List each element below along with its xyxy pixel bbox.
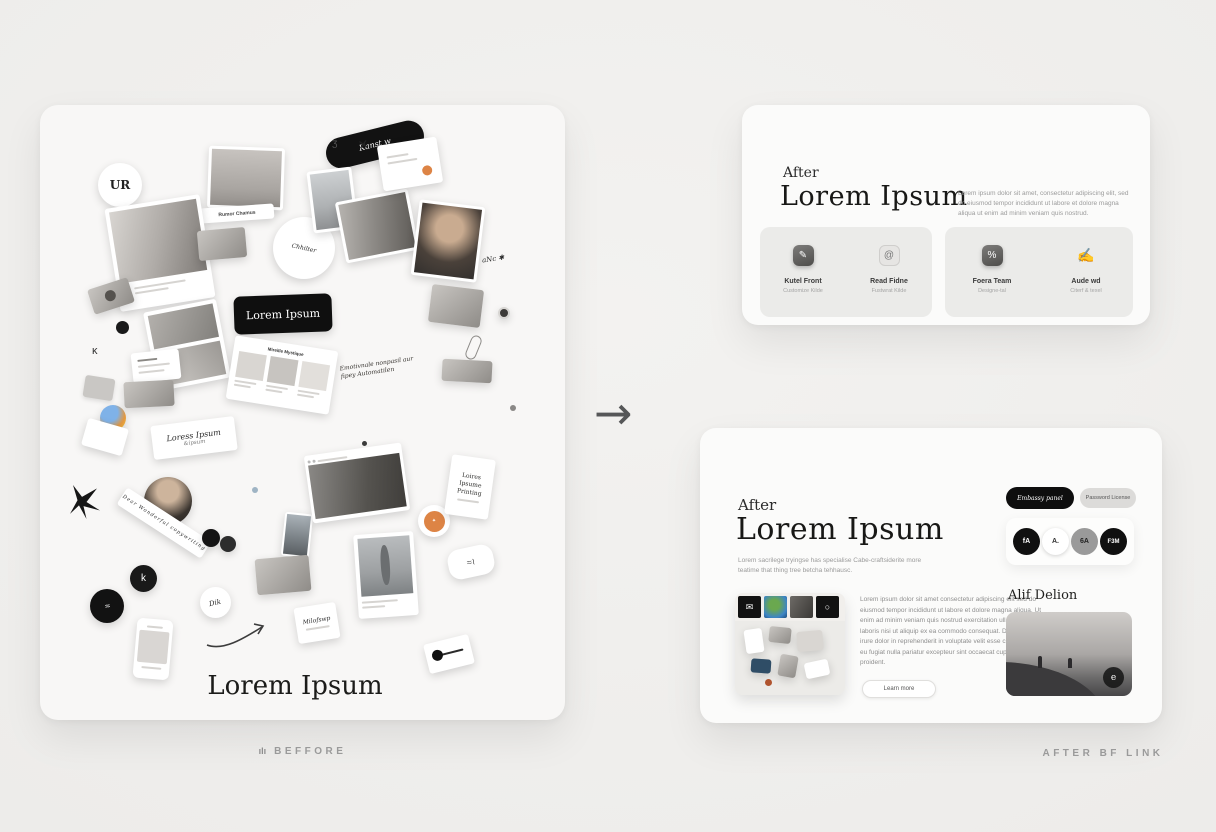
dik-badge: Dik [200,587,231,618]
signature-icon: ✍ [1076,245,1097,266]
feature-3: % Foera Team Designe-tal [945,227,1039,317]
sketch-pebble-glyph: ≈≀ [466,556,476,568]
black-badge-b [220,536,236,552]
before-caption: ılıBEFFORE [40,746,565,757]
browser-card-suit-man [304,443,411,524]
note-line2: &ipsum [183,438,205,447]
tag-sticker-label: Rumor Chamus [218,209,256,218]
mood-icon-photo [790,596,813,618]
paperclip [464,334,484,361]
phone-mockup [132,618,173,681]
k-badge: k [130,565,157,592]
dik-badge-label: Dik [209,597,222,607]
after-top-paragraph: Lorem ipsum dolor sit amet, consectetur … [958,189,1130,219]
after-top-card: After Lorem Ipsum Lorem ipsum dolor sit … [742,105,1150,325]
feature-2-subtitle: Fustwrat Kilde [846,288,932,294]
gallery-photo: e [1006,612,1132,696]
photo-strip [441,359,492,384]
feature-3-title: Foera Team [945,278,1039,285]
feature-panel-left: ✎ Kutel Front Customize Kilde @ Read Fid… [760,227,932,317]
text-note-card [131,349,182,384]
photo-group [255,555,312,596]
pen-icon: ✎ [793,245,814,266]
three-scribble: ʒ [332,138,337,149]
after-bottom-card: After Lorem Ipsum Lorem sacrilege trying… [700,428,1162,723]
after-bottom-subtitle: Lorem sacrilege tryingse has specialise … [738,556,933,576]
moodboard-thumbnail: ✉ ○ [735,593,845,695]
gray-swatch [82,375,115,401]
photo-meditating-man [207,146,285,211]
slider-card [423,634,475,674]
mood-icon-circle: ○ [816,596,839,618]
social-icon-2[interactable]: A. [1042,528,1069,555]
mood-icon-earth [764,596,787,618]
light-pill-label: Password License [1086,495,1131,501]
after-top-kicker: After [783,165,819,181]
road-shape [1006,662,1106,696]
after-bottom-title: Lorem Ipsum [736,512,944,547]
mood-icon-mail: ✉ [738,596,761,618]
scribble-badge: ≈ [90,589,124,623]
speck-b [362,441,367,446]
percent-icon: % [982,245,1003,266]
polaroid-beach [281,512,313,559]
handwritten-note-card: Loress Ipsum &ipsum [150,416,238,460]
before-caption-icon: ılı [259,746,267,756]
k-badge-label: k [141,573,146,584]
business-card: Milofswp [293,602,340,644]
k-scribble: κ [92,345,98,357]
printing-card: Loires Ipsume Printing [444,454,496,520]
script-circle-label: Chhilter [291,242,317,254]
after-caption: AFTER BF LINK [1003,748,1203,759]
ur-badge: UR [98,163,142,207]
feature-3-subtitle: Designe-tal [945,288,1039,294]
ur-badge-label: UR [110,178,130,192]
feature-4-title: Aude wd [1039,278,1133,285]
person-silhouette-2 [1068,658,1072,668]
photo-group-right [428,284,484,328]
person-silhouette-1 [1038,656,1042,668]
feature-1-subtitle: Customize Kilde [760,288,846,294]
anc-sticker: aNc ✱ [482,253,505,264]
feature-panel-right: % Foera Team Designe-tal ✍ Aude wd Citer… [945,227,1133,317]
at-icon: @ [879,245,900,266]
photo-woman-portrait [411,199,486,282]
ink-bow-shape [70,485,100,519]
photo-city-scene [335,189,419,264]
feature-1-title: Kutel Front [760,278,846,285]
social-icons-bar: fA A. 6A F3M [1006,518,1134,565]
gallery-title: Alif Delion [1008,588,1077,603]
feature-4: ✍ Aude wd Citerf & texel [1039,227,1133,317]
black-badge-a [202,529,220,547]
learn-more-button[interactable]: Learn more [862,680,936,698]
web-mockup-card: Mireille Mystique [226,335,339,414]
photo-two-women [197,227,247,261]
feature-4-subtitle: Citerf & texel [1039,288,1133,294]
feature-2-title: Read Fidne [846,278,932,285]
social-icon-3[interactable]: 6A [1071,528,1098,555]
dark-pill-button[interactable]: Embassy panel [1006,487,1074,509]
after-top-title: Lorem Ipsum [780,181,968,212]
speck-c [252,487,258,493]
social-icon-1[interactable]: fA [1013,528,1040,555]
sketch-pebble-card: ≈≀ [445,543,496,582]
social-icon-4[interactable]: F3M [1100,528,1127,555]
printing-card-label: Loires Ipsume Printing [456,471,484,498]
lorem-black-pill-label: Lorem Ipsum [246,306,321,322]
curved-arrow-sketch [205,620,271,655]
photo-badge[interactable]: e [1103,667,1124,688]
dark-pill-label: Embassy panel [1017,495,1063,502]
scribble-badge-label: ≈ [103,601,110,612]
transform-arrow-icon: → [594,386,633,440]
speck-a [510,405,516,411]
card-orange-dot [377,137,443,192]
before-caption-label: BEFFORE [274,746,346,757]
light-pill-button[interactable]: Password License [1080,488,1136,508]
board-title: Lorem Ipsum [180,671,410,701]
before-board: Kanst w UR Rumor Chamus Chhilter ✕ ʒ [40,105,565,720]
black-dot [116,321,129,334]
small-knob [498,307,510,319]
photo-statue-card [353,531,419,619]
feature-2: @ Read Fidne Fustwrat Kilde [846,227,932,317]
handwritten-annotation: Emotivnale nonpasil aur fipey Automatile… [339,355,418,382]
lorem-black-pill: Lorem Ipsum [233,293,332,334]
photo-people-pair [123,380,174,409]
feature-1: ✎ Kutel Front Customize Kilde [760,227,846,317]
